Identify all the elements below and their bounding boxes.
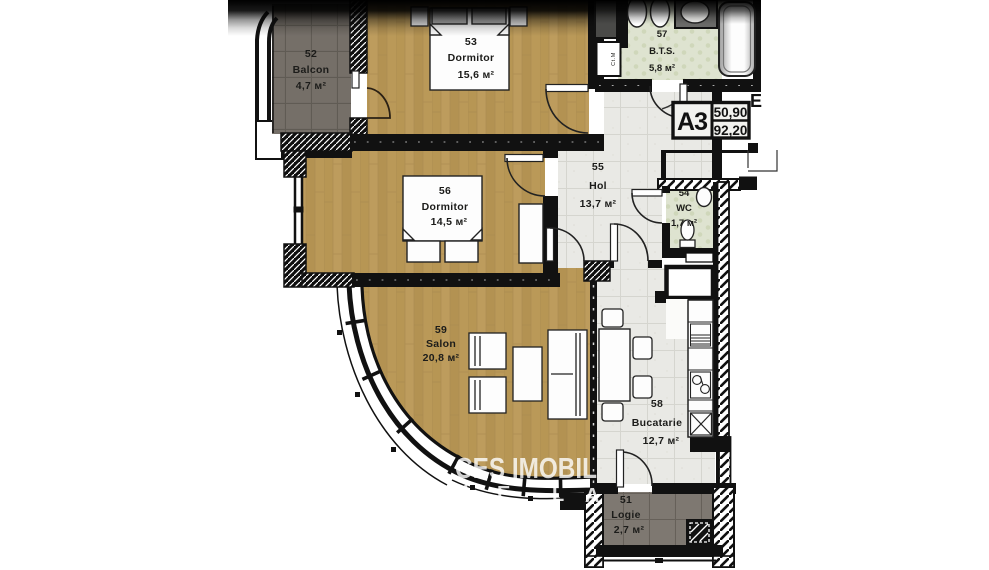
svg-text:2,7 м²: 2,7 м² — [614, 524, 645, 536]
svg-text:58: 58 — [651, 398, 663, 410]
svg-text:56: 56 — [439, 185, 451, 197]
svg-text:Hol: Hol — [589, 180, 607, 192]
svg-text:57: 57 — [657, 29, 668, 40]
svg-text:B.T.S.: B.T.S. — [649, 46, 675, 57]
svg-text:15,6 м²: 15,6 м² — [458, 69, 495, 81]
svg-text:54: 54 — [679, 188, 690, 199]
svg-text:Dormitor: Dormitor — [422, 201, 469, 213]
svg-text:L: L — [552, 484, 564, 506]
svg-text:51: 51 — [620, 494, 632, 506]
svg-text:55: 55 — [592, 161, 604, 173]
svg-text:14,5 м²: 14,5 м² — [431, 216, 468, 228]
svg-text:4,7 м²: 4,7 м² — [296, 80, 327, 92]
svg-text:Bucatarie: Bucatarie — [632, 417, 683, 429]
svg-text:E: E — [497, 483, 510, 505]
svg-text:50,90: 50,90 — [714, 105, 748, 120]
svg-text:20,8 м²: 20,8 м² — [423, 352, 460, 364]
svg-text:Dormitor: Dormitor — [448, 52, 495, 64]
svg-text:E: E — [750, 91, 762, 111]
svg-text:5,8 м²: 5,8 м² — [649, 63, 675, 74]
svg-text:92,20: 92,20 — [714, 123, 748, 138]
svg-text:59: 59 — [435, 324, 447, 336]
svg-text:12,7 м²: 12,7 м² — [643, 435, 680, 447]
svg-text:CES IMOBIL: CES IMOBIL — [455, 453, 597, 485]
svg-text:Ct.M: Ct.M — [611, 52, 617, 66]
svg-text:52: 52 — [305, 48, 317, 60]
svg-text:I: I — [463, 482, 469, 504]
svg-text:A3: A3 — [677, 108, 707, 136]
svg-text:Logie: Logie — [611, 509, 641, 521]
svg-text:Balcon: Balcon — [293, 64, 330, 76]
svg-text:53: 53 — [465, 36, 477, 48]
svg-text:A: A — [585, 485, 599, 507]
svg-text:Salon: Salon — [426, 338, 456, 350]
svg-text:1,7 м²: 1,7 м² — [671, 218, 697, 229]
svg-text:13,7 м²: 13,7 м² — [580, 198, 617, 210]
svg-text:WC: WC — [676, 203, 692, 214]
